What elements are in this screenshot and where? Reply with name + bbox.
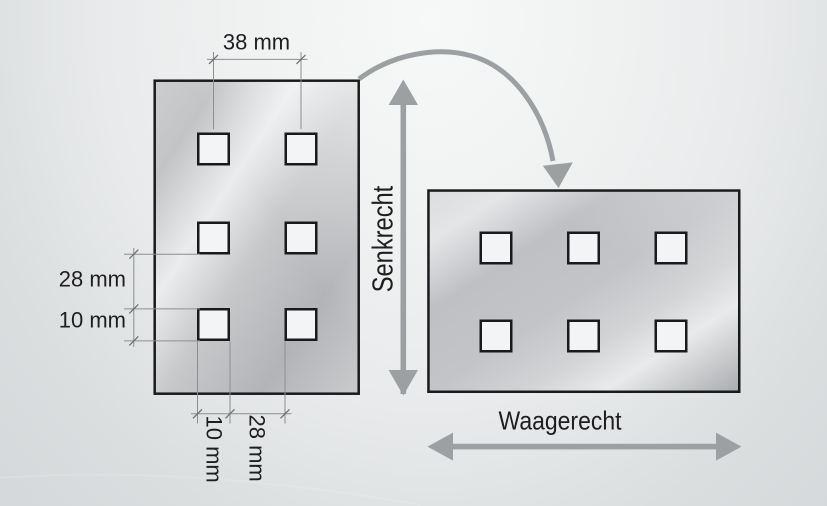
svg-text:10 mm: 10 mm	[202, 416, 227, 483]
svg-text:Waagerecht: Waagerecht	[499, 406, 623, 436]
svg-text:Senkrecht: Senkrecht	[368, 186, 400, 293]
svg-text:28 mm: 28 mm	[59, 267, 126, 292]
svg-text:38 mm: 38 mm	[223, 30, 290, 55]
svg-text:28 mm: 28 mm	[245, 415, 270, 482]
svg-text:10 mm: 10 mm	[59, 308, 126, 333]
